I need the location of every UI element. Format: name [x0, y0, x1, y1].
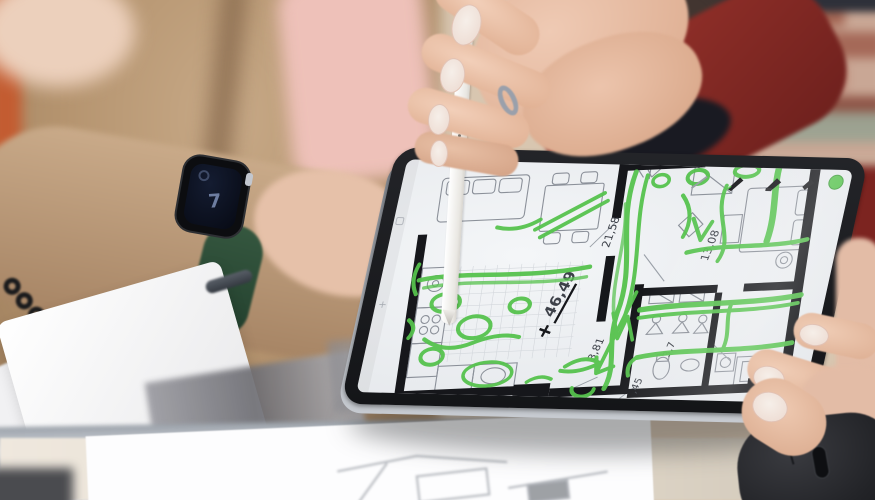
dimension-label: 21,58 [599, 216, 623, 249]
watch-complication-icon [198, 169, 211, 182]
mouse-scroll-wheel [810, 445, 831, 480]
pen-tool-icon[interactable] [724, 172, 748, 192]
chisel-marker-tool-icon[interactable] [796, 172, 820, 192]
line-tool-icon[interactable] [688, 172, 712, 192]
photo-scene: 7 [0, 0, 875, 500]
apple-watch: 7 [172, 152, 255, 242]
watch-screen: 7 [182, 162, 244, 231]
app-toolbar [677, 166, 853, 198]
shadow-corner [0, 468, 73, 500]
watch-hour-digit: 7 [207, 190, 222, 213]
marker-tool-icon[interactable] [762, 172, 786, 192]
active-color-swatch[interactable] [827, 175, 845, 190]
sidebar-tool-button[interactable] [395, 217, 405, 225]
